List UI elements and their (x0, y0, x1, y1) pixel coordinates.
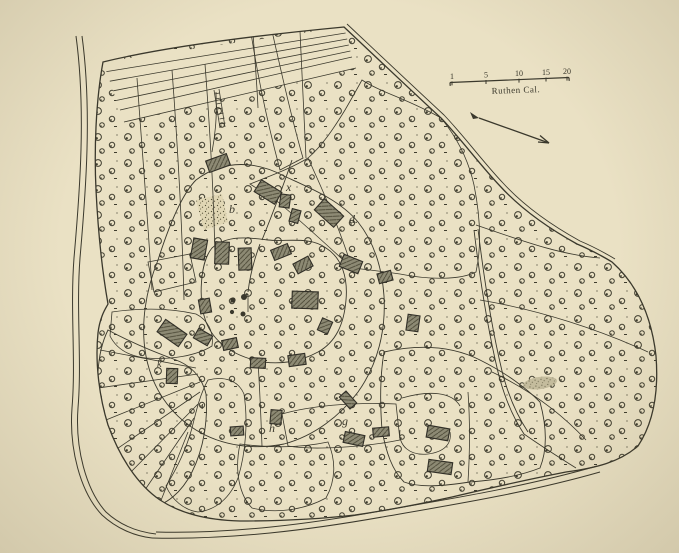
building (373, 427, 390, 437)
building (215, 242, 230, 264)
building (279, 194, 291, 208)
map-canvas: xd.bkihg 15101520 Ruthen Cal. (0, 0, 679, 553)
building (166, 368, 178, 383)
building (292, 291, 319, 309)
map-label-g: g (342, 414, 348, 428)
scanned-map-page: xd.bkihg 15101520 Ruthen Cal. (0, 0, 679, 553)
building (190, 238, 207, 260)
scale-tick-number: 20 (563, 67, 571, 76)
scale-tick-number: 10 (515, 69, 523, 78)
map-label-h: h (269, 421, 275, 435)
scale-tick-number: 1 (450, 72, 454, 81)
map-label-x: x (285, 180, 292, 194)
building (238, 248, 252, 270)
building (288, 353, 306, 366)
building (427, 459, 452, 474)
scale-tick-number: 5 (484, 70, 488, 79)
scale-tick-number: 15 (542, 68, 550, 77)
map-label-b: b (229, 202, 235, 216)
map-label-i: i (201, 401, 204, 412)
map-label-k: k (157, 359, 162, 370)
building (406, 314, 420, 332)
map-label-d: d. (349, 212, 358, 226)
building (250, 358, 266, 369)
scale-bar-label: Ruthen Cal. (491, 84, 540, 96)
building (198, 298, 211, 314)
building (230, 426, 244, 436)
